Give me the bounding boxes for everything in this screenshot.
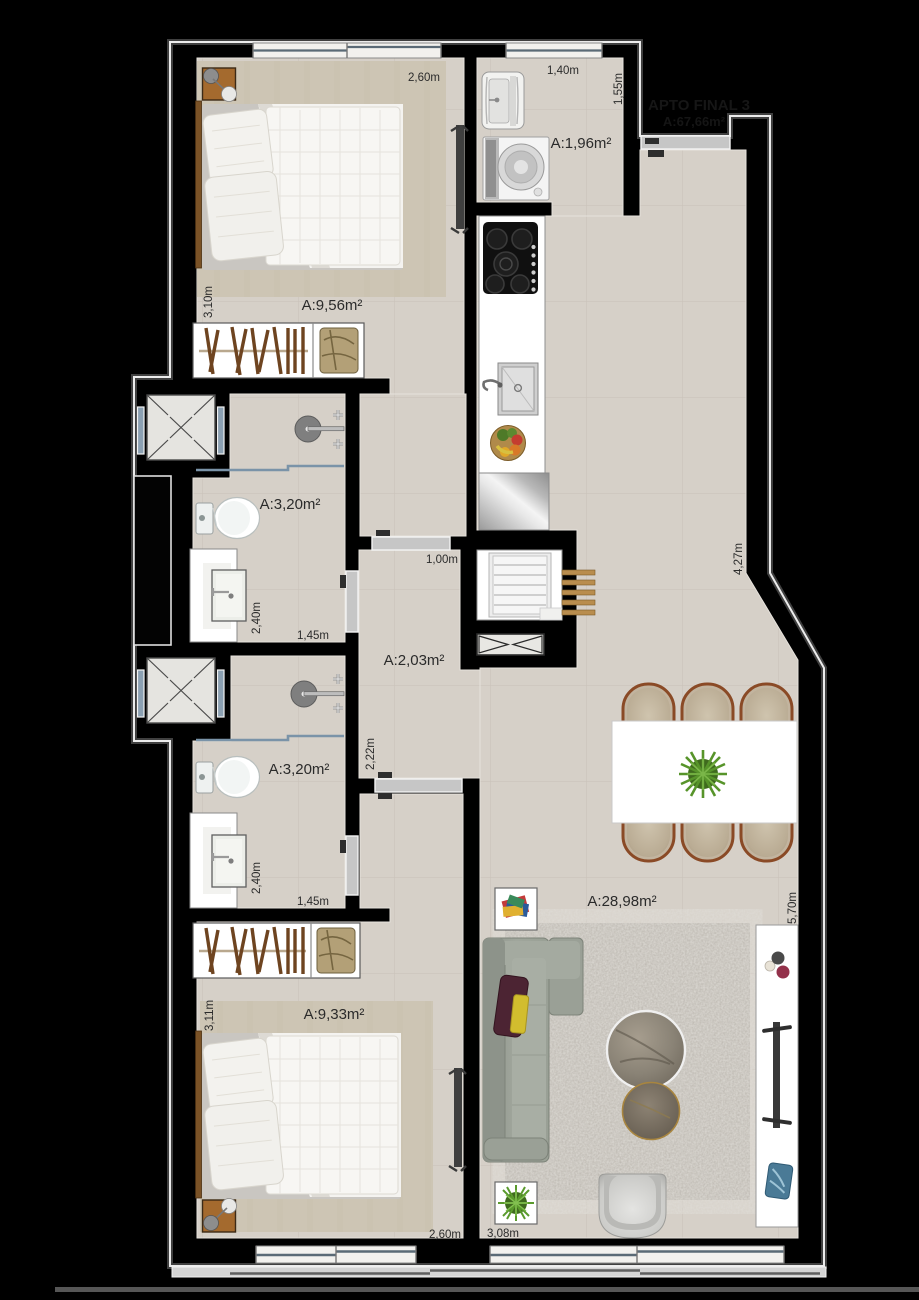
svg-text:A:67,66m²: A:67,66m² xyxy=(663,114,726,129)
svg-text:A:28,98m²: A:28,98m² xyxy=(587,893,656,910)
svg-text:3,08m: 3,08m xyxy=(487,1228,519,1240)
svg-text:2,60m: 2,60m xyxy=(429,1229,461,1241)
svg-text:A:9,56m²: A:9,56m² xyxy=(302,297,363,314)
svg-text:A:2,03m²: A:2,03m² xyxy=(384,652,445,669)
svg-text:APTO FINAL 3: APTO FINAL 3 xyxy=(648,97,750,114)
svg-text:4,27m: 4,27m xyxy=(733,543,745,575)
svg-text:1,45m: 1,45m xyxy=(297,630,329,642)
svg-text:A:1,96m²: A:1,96m² xyxy=(551,135,612,152)
svg-text:2,40m: 2,40m xyxy=(251,602,263,634)
svg-text:2,60m: 2,60m xyxy=(408,72,440,84)
svg-text:3,10m: 3,10m xyxy=(203,286,215,318)
svg-text:1,40m: 1,40m xyxy=(547,65,579,77)
svg-text:A:3,20m²: A:3,20m² xyxy=(260,496,321,513)
svg-text:A:9,33m²: A:9,33m² xyxy=(304,1006,365,1023)
svg-text:3,11m: 3,11m xyxy=(204,1000,216,1031)
svg-text:5,70m: 5,70m xyxy=(787,892,799,924)
svg-text:2,22m: 2,22m xyxy=(365,738,377,770)
svg-text:1,55m: 1,55m xyxy=(613,73,625,105)
svg-text:2,40m: 2,40m xyxy=(251,862,263,894)
svg-text:A:3,20m²: A:3,20m² xyxy=(269,761,330,778)
svg-text:1,45m: 1,45m xyxy=(297,896,329,908)
svg-text:1,00m: 1,00m xyxy=(426,554,458,566)
